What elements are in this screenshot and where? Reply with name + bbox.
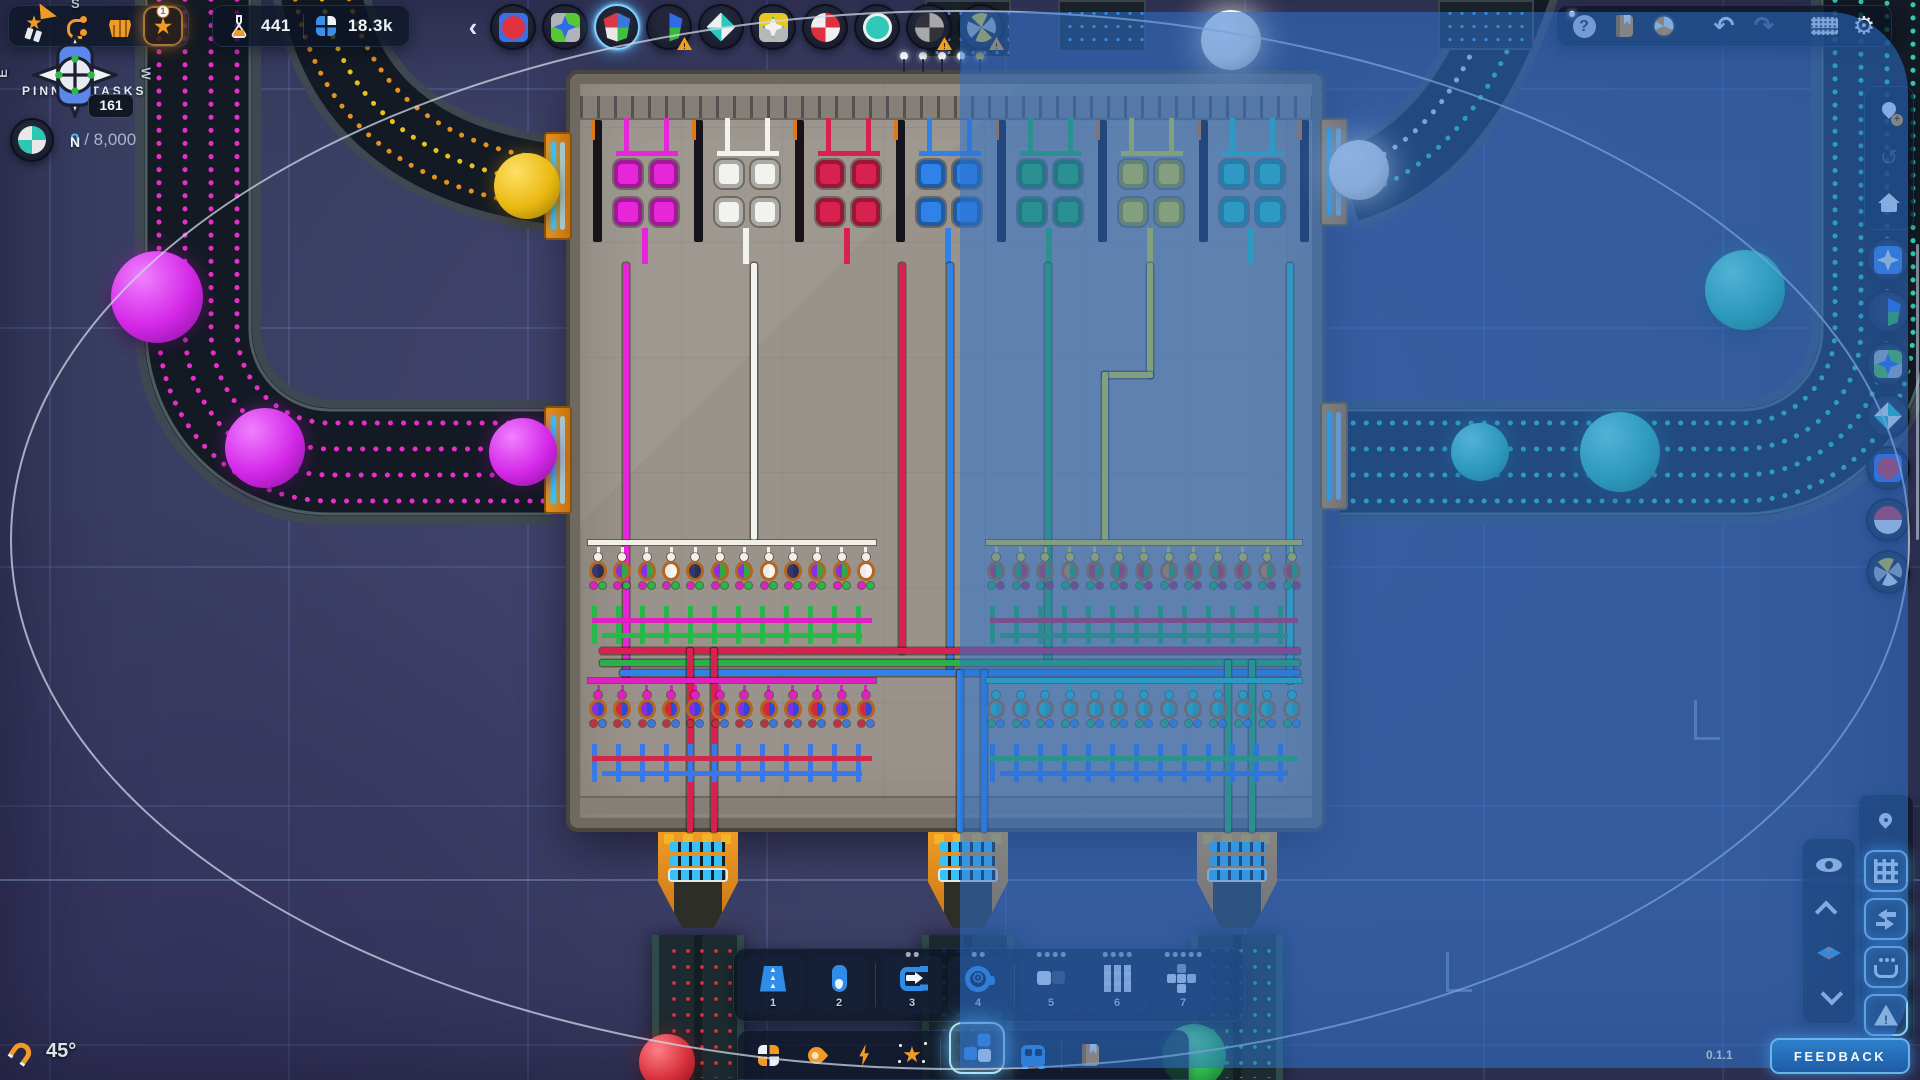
task-shape [10,118,54,162]
flask-icon [229,14,249,38]
magnet-icon[interactable] [9,1039,35,1064]
camera-angle-row: 45° [12,1040,76,1063]
level-badge: 1 [157,5,170,18]
version-label: 0.1.1 [1706,1048,1733,1062]
shape-list-scrollbar[interactable] [1916,244,1919,540]
compass-east: E [0,69,10,78]
shapes-count: 18.3k [348,16,393,36]
shape-button[interactable] [10,118,54,162]
circle-shape [18,126,46,154]
shapes-icon [316,16,336,36]
compass-half-disc [960,12,1908,1068]
resources-panel: 441 18.3k [212,5,410,47]
heading-badge: 161 [88,94,134,118]
shape-base [499,13,528,42]
compass-north: N [70,134,80,150]
science-count: 441 [261,16,291,36]
feedback-button[interactable]: FEEDBACK [1770,1038,1910,1074]
shape-base [551,13,580,42]
task-separator: / [84,130,89,149]
collapse-toolbar-button[interactable]: ‹ [462,12,484,43]
camera-angle: 45° [46,1040,76,1063]
game-viewport[interactable]: ★ ★ 1 441 18.3k ‹ [0,0,1920,1080]
circle-shape [502,16,525,39]
shield-shape [603,13,632,42]
compass-west: W [139,67,154,79]
level-button[interactable]: ★ 1 [145,8,181,44]
task-goal: 8,000 [94,130,137,149]
divider [303,14,304,38]
shape-pin-2[interactable] [542,4,588,50]
shape-pin-1[interactable] [490,4,536,50]
star-shape [554,16,577,39]
compass-south: S [71,0,80,11]
